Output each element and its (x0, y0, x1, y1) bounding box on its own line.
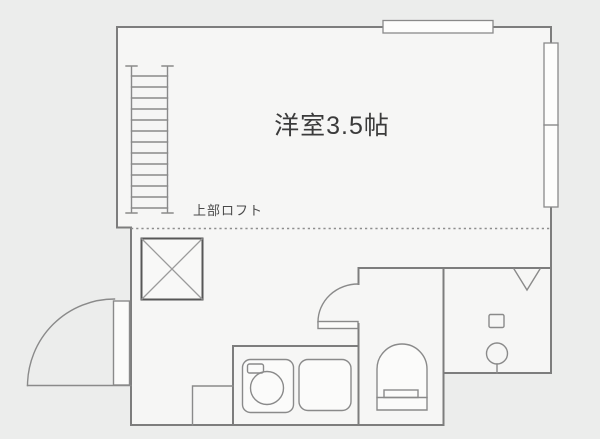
floorplan-canvas: 洋室3.5帖 上部ロフト (0, 0, 600, 439)
floorplan-drawing: 洋室3.5帖 上部ロフト (0, 0, 600, 439)
washing-machine (243, 360, 294, 413)
toilet-bowl (377, 344, 427, 410)
toilet-door-leaf (318, 322, 358, 329)
toilet (377, 344, 427, 410)
kitchen-sink-unit (299, 360, 351, 411)
entrance-door-leaf (114, 301, 130, 385)
entrance-door (28, 299, 132, 386)
closet-cross-box (142, 239, 203, 300)
entrance-door-swing-arc (28, 299, 115, 386)
room-size-label: 洋室3.5帖 (274, 112, 390, 140)
right-sliding-window (544, 43, 558, 207)
loft-label: 上部ロフト (193, 203, 263, 218)
top-window (383, 21, 493, 34)
